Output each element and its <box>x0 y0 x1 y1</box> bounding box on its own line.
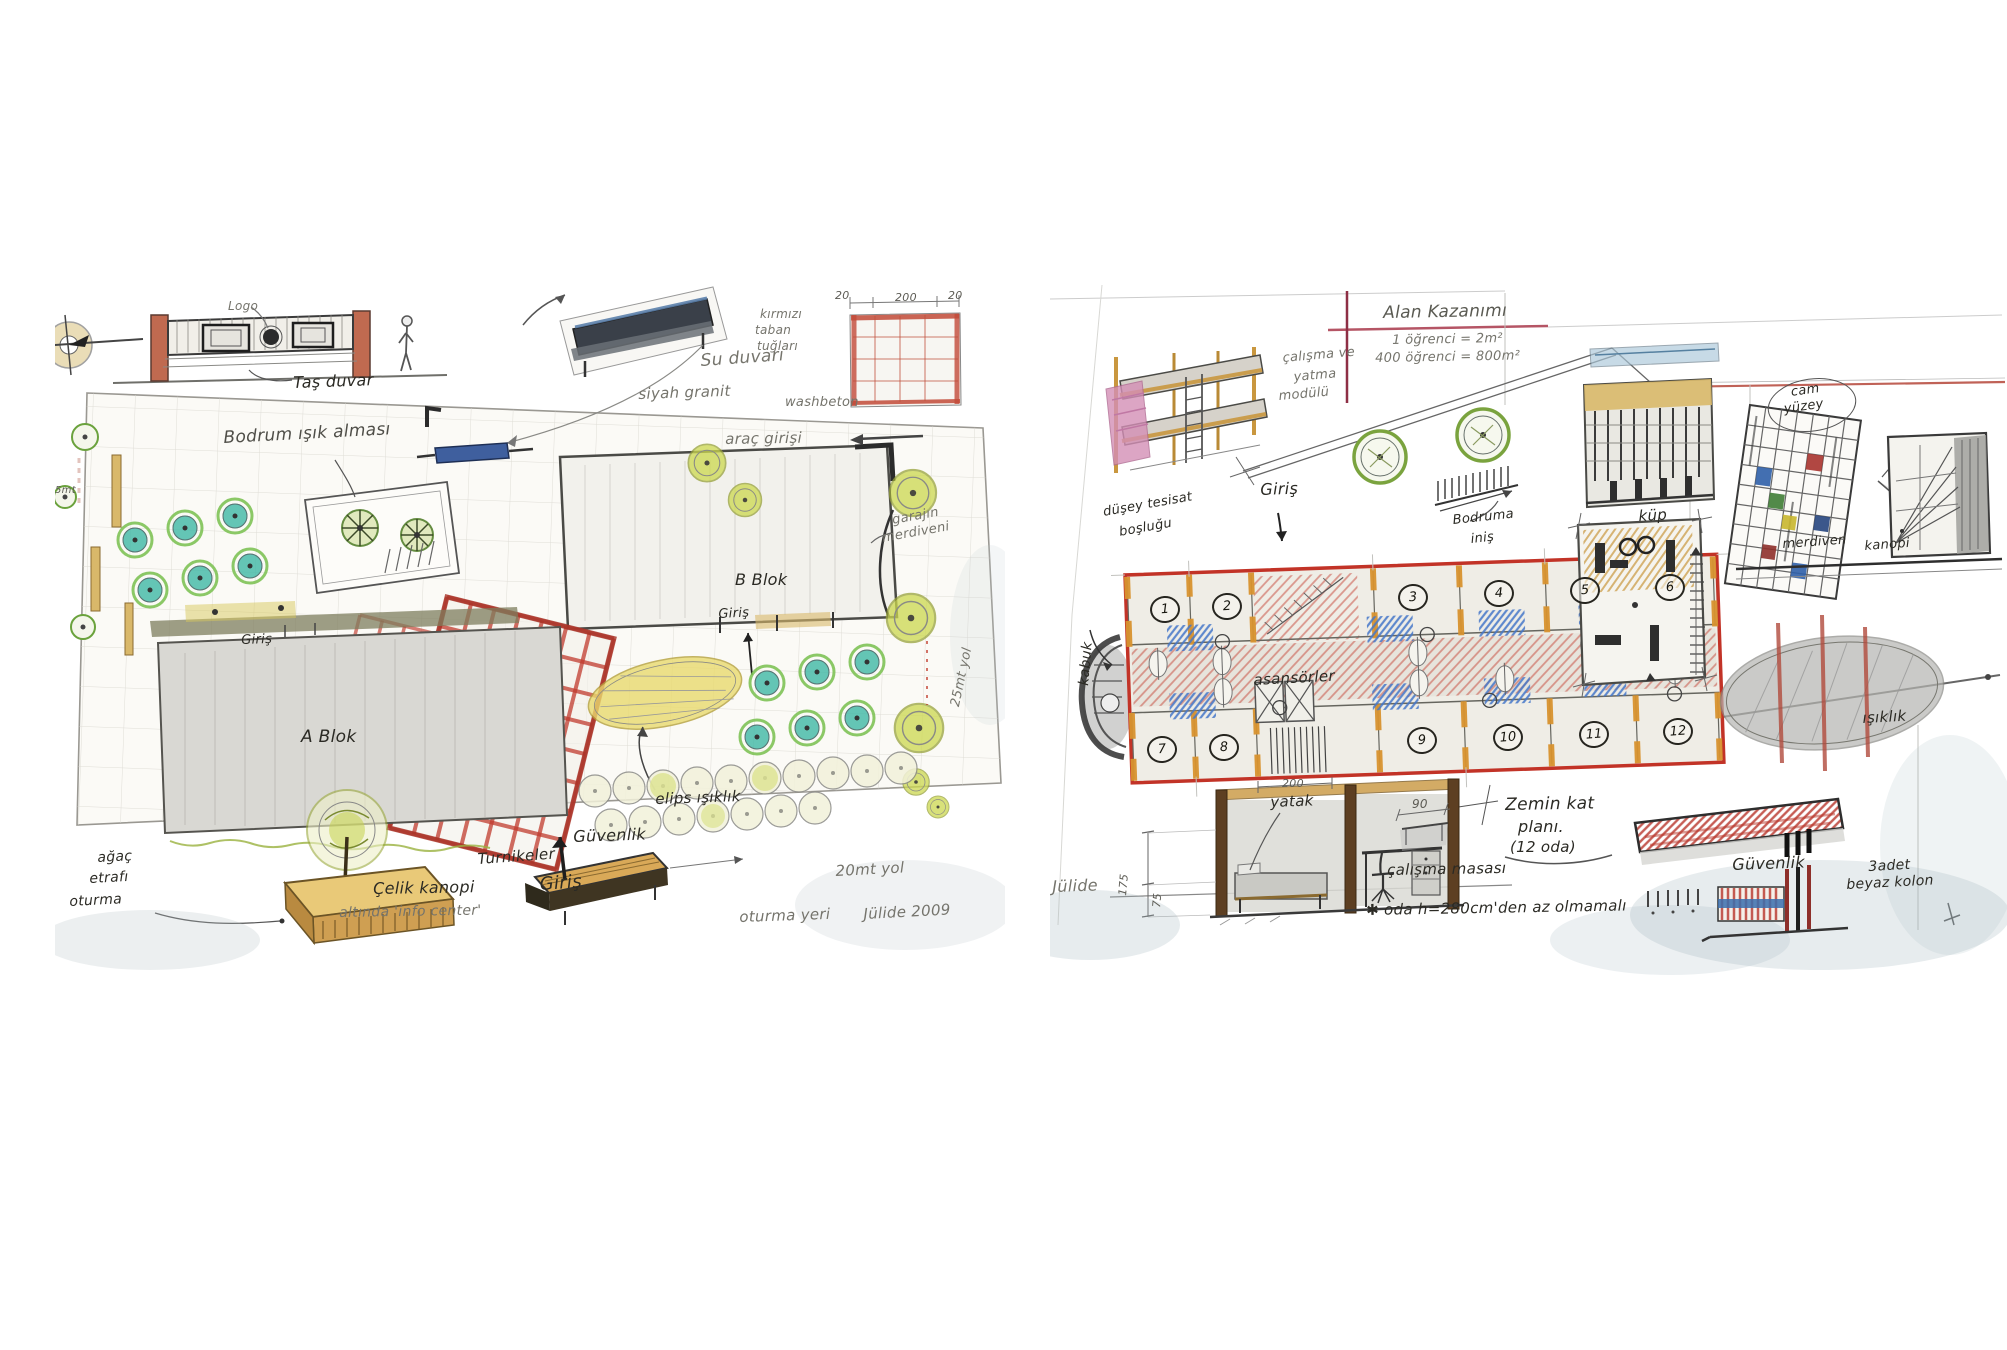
label-stone-wall: Taş duvar <box>293 370 374 392</box>
label-black-granite: siyah granit <box>638 382 731 403</box>
label-logo: Logo <box>228 299 258 313</box>
right-floor-plan-sketch: Alan Kazanımı 1 öğrenci = 2m² 400 öğrenc… <box>1050 285 2007 985</box>
label-floor-plan-3: (12 oda) <box>1510 838 1576 856</box>
label-b-blok: B Blok <box>735 570 787 589</box>
signature: Jülide <box>1052 875 1098 896</box>
dim-90: 90 <box>1412 797 1428 811</box>
paving-grid-detail <box>850 295 961 407</box>
dim-200: 200 <box>1282 777 1304 790</box>
striped-wall-block <box>1718 887 1784 921</box>
label-vehicle-entry: araç girişi <box>725 429 802 448</box>
label-desk: çalışma masası <box>1387 859 1506 879</box>
label-red-brick-3: tuğları <box>757 339 798 353</box>
label-tree-seat-1: ağaç <box>97 848 133 866</box>
skylight-fan-icon <box>401 519 433 551</box>
label-canopy-1: Çelik kanopi <box>373 877 475 898</box>
label-cube: küp <box>1638 506 1668 525</box>
dim-5m: 5mt <box>55 485 76 496</box>
entrance-wall-elevation <box>113 307 447 383</box>
cube-facade <box>1584 343 1719 507</box>
label-tree-seat-3: oturma <box>69 891 122 910</box>
label-columns-1: 3adet <box>1868 857 1911 875</box>
label-washbeton: washbeton <box>785 395 859 410</box>
dim-200: 200 <box>895 291 917 304</box>
skylight-fan-icon <box>342 510 378 546</box>
label-bed: yatak <box>1270 791 1314 811</box>
left-site-plan-sketch: Logo Taş duvar Bodrum ışık alması Su duv… <box>55 285 1005 975</box>
label-road-20m: 20mt yol <box>835 858 905 880</box>
dim-20-left: 20 <box>835 289 850 302</box>
label-calc-2: 400 öğrenci = 800m² <box>1375 348 1520 366</box>
label-canopy: kanopi <box>1864 536 1910 554</box>
label-entry: Giriş <box>1260 479 1298 499</box>
label-ellipse-skylight: elips ışıklık <box>655 787 741 808</box>
label-tree-seat-2: etrafı <box>89 869 129 887</box>
label-security: Güvenlik <box>1732 852 1805 874</box>
label-floor-plan-1: Zemin kat <box>1505 793 1595 815</box>
label-calc-1: 1 öğrenci = 2m² <box>1392 331 1503 348</box>
label-title: Alan Kazanımı <box>1383 301 1507 323</box>
bunk-module-sketch <box>1106 347 1267 473</box>
label-a-blok: A Blok <box>301 727 356 747</box>
label-canopy-2: altında 'info center' <box>339 903 482 921</box>
label-red-brick-2: taban <box>755 323 791 337</box>
label-basement-2: iniş <box>1470 530 1495 547</box>
label-b-entry: Giriş <box>718 605 750 622</box>
label-a-entry: Giriş <box>241 632 272 648</box>
person-figure <box>399 316 413 371</box>
label-main-entry: Giriş <box>539 871 583 895</box>
label-security: Güvenlik <box>573 824 646 846</box>
underline-stroke <box>1505 855 1612 864</box>
label-seating-area: oturma yeri <box>739 905 831 926</box>
dim-175: 175 <box>1116 873 1131 896</box>
compass-icon <box>55 315 143 375</box>
sketchbook-page: Logo Taş duvar Bodrum ışık alması Su duv… <box>0 0 2007 1350</box>
dim-20-right: 20 <box>948 289 963 302</box>
label-skylight: ışıklık <box>1862 707 1907 727</box>
label-red-brick-1: kırmızı <box>760 307 802 321</box>
label-floor-plan-2: planı. <box>1518 817 1564 836</box>
skylight-ellipse-sketch <box>1715 615 1949 771</box>
dim-75: 75 <box>1150 892 1164 908</box>
